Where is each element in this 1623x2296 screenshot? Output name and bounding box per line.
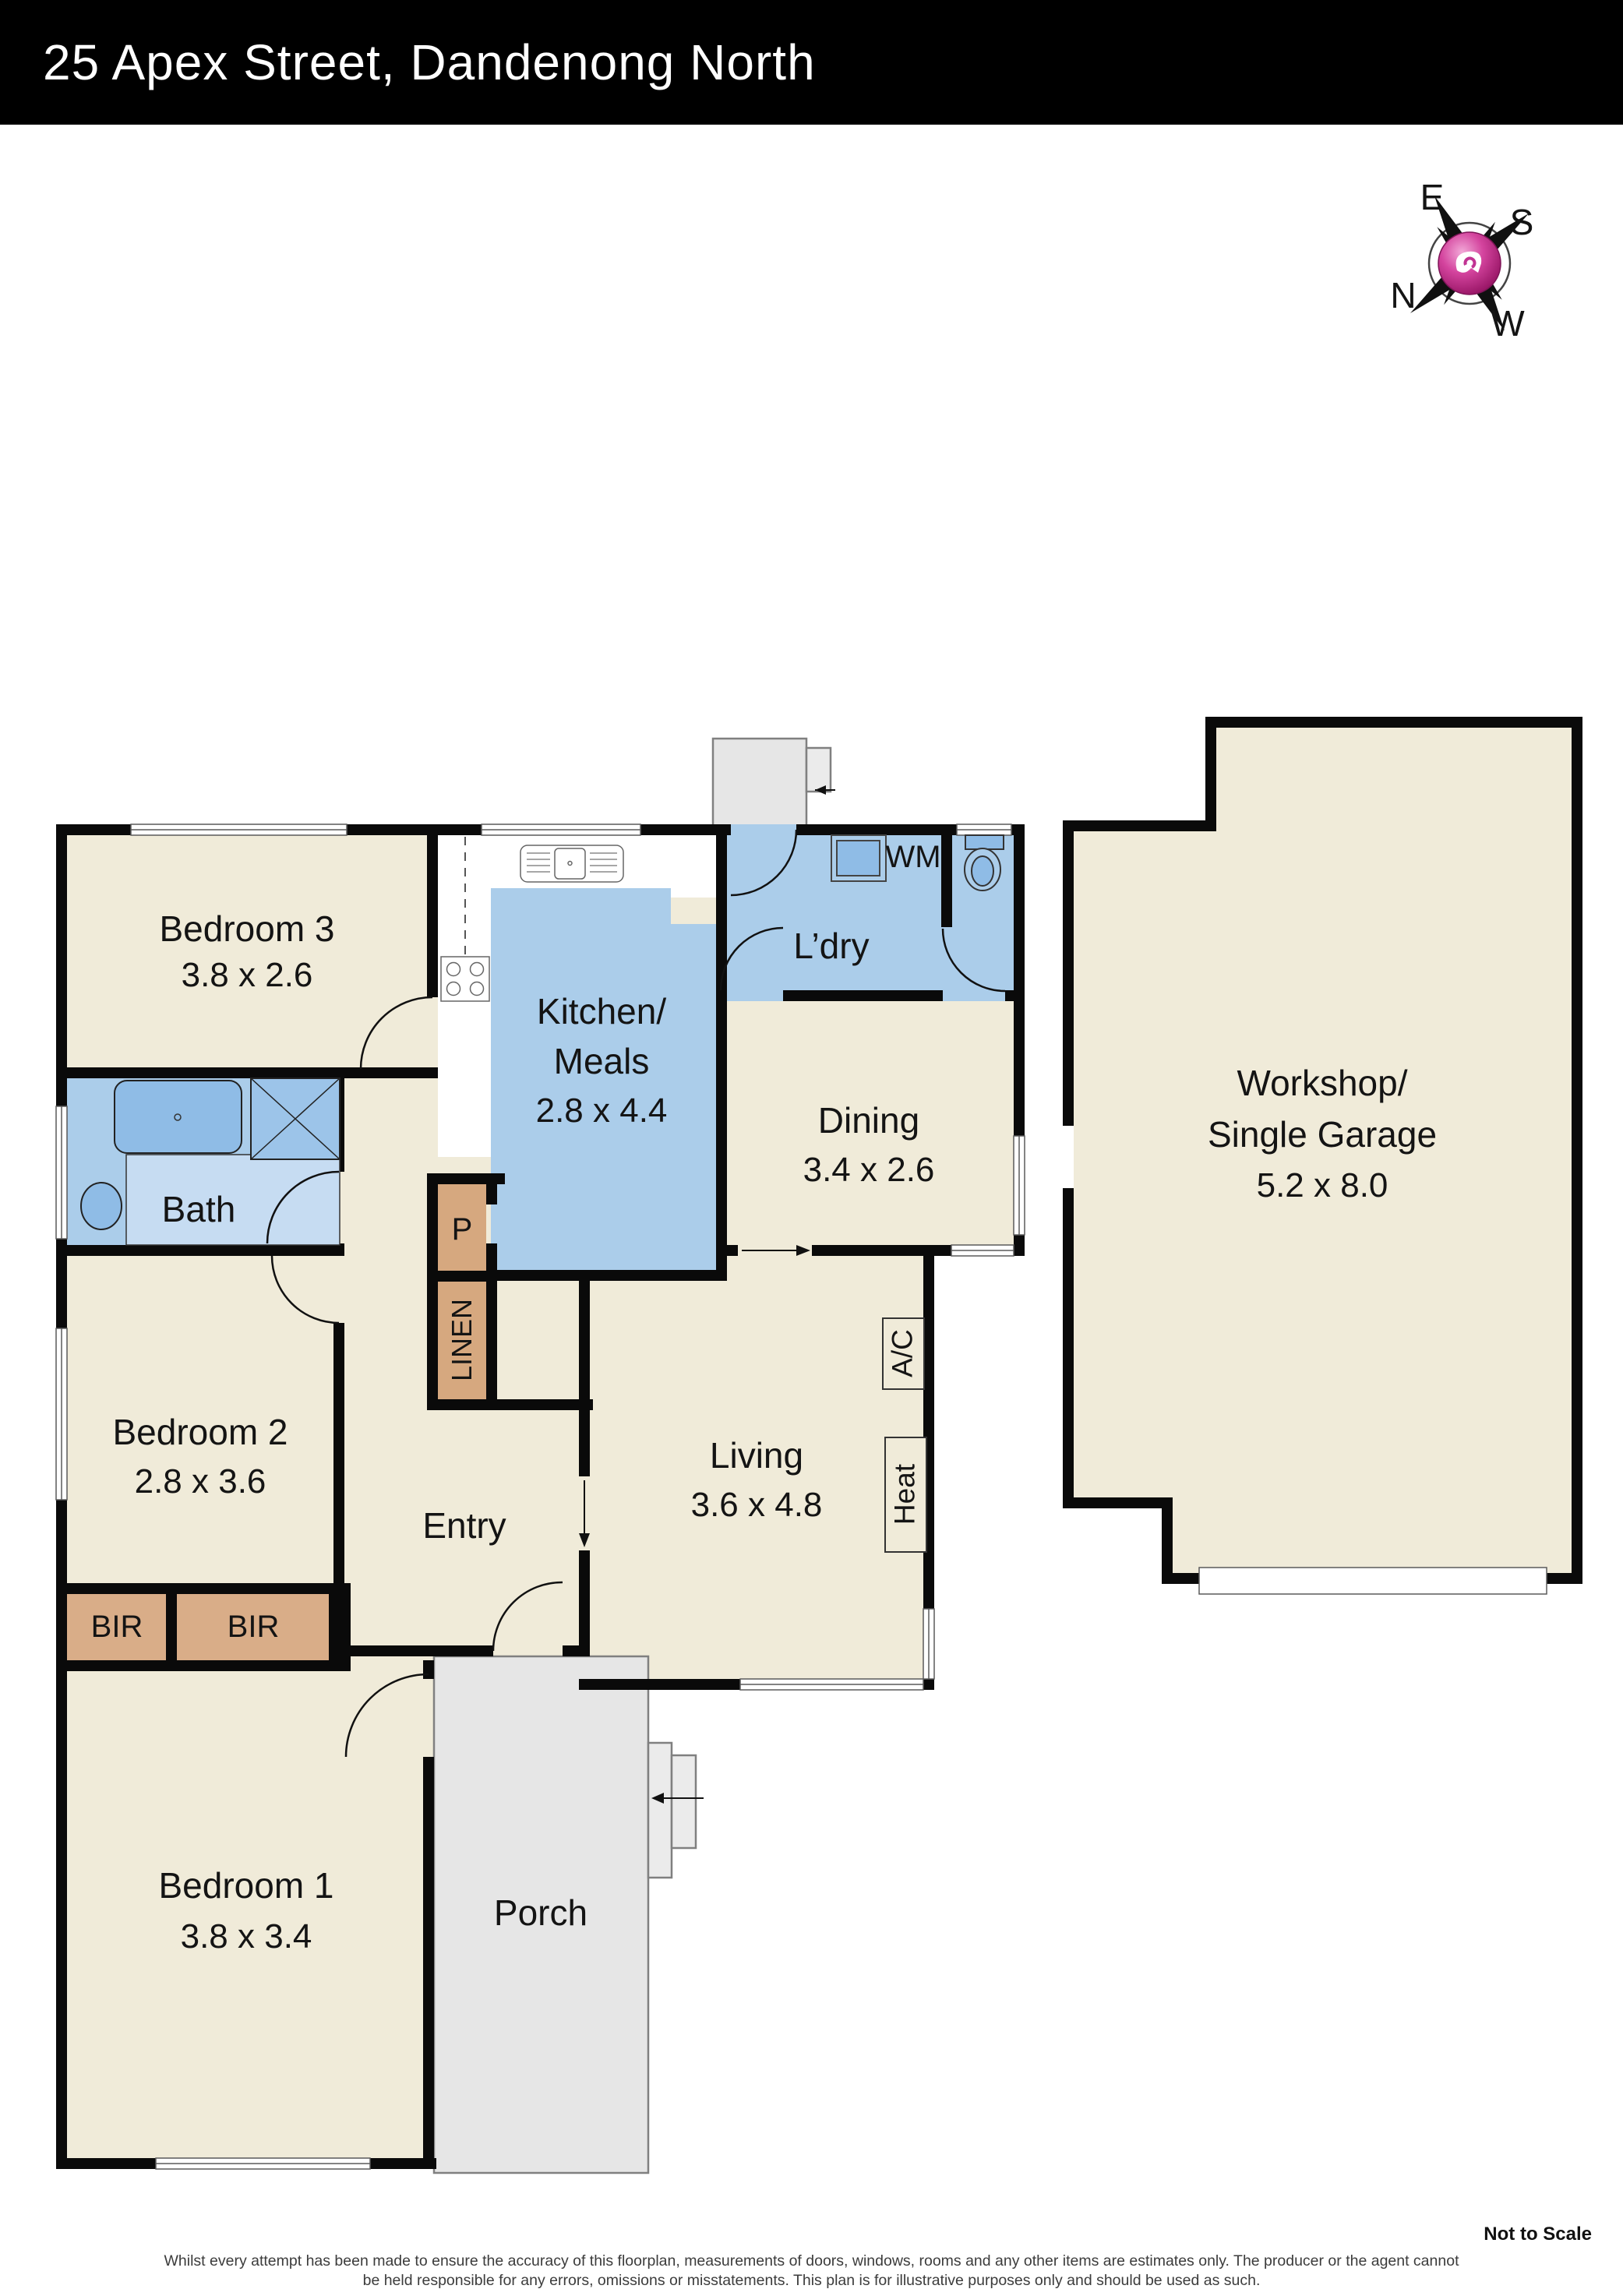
label-living: Living xyxy=(710,1437,803,1474)
label-linen: LINEN xyxy=(447,1299,477,1381)
label-bedroom3: Bedroom 3 xyxy=(159,910,334,947)
label-bir-left: BIR xyxy=(91,1610,143,1643)
window-wc-top xyxy=(957,824,1011,835)
compass-label-west: W xyxy=(1491,305,1524,342)
label-entry: Entry xyxy=(422,1507,506,1544)
window-bedroom2-left xyxy=(56,1328,67,1500)
rear-step-2 xyxy=(806,748,831,792)
label-heat: Heat xyxy=(891,1464,921,1525)
not-to-scale-note: Not to Scale xyxy=(1484,2224,1592,2245)
window-dining-right xyxy=(1014,1136,1025,1235)
label-porch: Porch xyxy=(494,1894,587,1931)
porch-step-2 xyxy=(672,1755,696,1848)
compass-label-north: N xyxy=(1390,277,1416,314)
disclaimer-line-2: be held responsible for any errors, omis… xyxy=(0,2271,1623,2291)
basin xyxy=(81,1183,122,1229)
label-dining-dims: 3.4 x 2.6 xyxy=(803,1152,935,1188)
floorplan-page: 25 Apex Street, Dandenong North xyxy=(0,0,1623,2296)
disclaimer-line-1: Whilst every attempt has been made to en… xyxy=(0,2252,1623,2271)
label-bir-right: BIR xyxy=(228,1610,280,1643)
porch-step-1 xyxy=(648,1743,672,1878)
bathtub xyxy=(115,1081,242,1153)
label-kitchen-2: Meals xyxy=(554,1042,650,1080)
window-kitchen-top xyxy=(482,824,640,835)
garage-door xyxy=(1199,1568,1547,1594)
sink xyxy=(520,845,623,882)
window-living-right xyxy=(923,1609,934,1679)
cooktop xyxy=(441,957,489,1001)
washing-machine xyxy=(831,835,886,881)
label-laundry: L’dry xyxy=(793,927,869,965)
toilet xyxy=(965,835,1004,891)
window-living-bottom xyxy=(740,1679,923,1690)
label-pantry: P xyxy=(452,1213,473,1246)
label-workshop-1: Workshop/ xyxy=(1237,1064,1407,1102)
window-bedroom1-bottom xyxy=(156,2158,370,2169)
label-ac: A/C xyxy=(888,1329,919,1377)
label-bedroom2-dims: 2.8 x 3.6 xyxy=(135,1464,266,1500)
window-bath-left xyxy=(56,1106,67,1239)
label-dining: Dining xyxy=(818,1102,919,1139)
label-bedroom1: Bedroom 1 xyxy=(158,1867,333,1904)
compass-label-south: S xyxy=(1510,203,1534,241)
label-wm: WM xyxy=(885,841,940,873)
label-bedroom1-dims: 3.8 x 3.4 xyxy=(181,1919,312,1955)
label-workshop-dims: 5.2 x 8.0 xyxy=(1257,1168,1388,1204)
label-kitchen-dims: 2.8 x 4.4 xyxy=(536,1093,668,1129)
rear-door-opening xyxy=(731,824,796,835)
disclaimer: Whilst every attempt has been made to en… xyxy=(0,2252,1623,2291)
label-bedroom3-dims: 3.8 x 2.6 xyxy=(182,958,313,993)
label-living-dims: 3.6 x 4.8 xyxy=(691,1487,823,1523)
rear-step-1 xyxy=(713,739,806,826)
label-bedroom2: Bedroom 2 xyxy=(112,1413,288,1451)
label-bath: Bath xyxy=(162,1190,236,1228)
label-workshop-2: Single Garage xyxy=(1208,1116,1437,1153)
compass-label-east: E xyxy=(1420,178,1445,216)
label-kitchen-1: Kitchen/ xyxy=(537,993,666,1030)
shower xyxy=(251,1078,340,1159)
window-bedroom3-top xyxy=(131,824,347,835)
window-dining-bottom xyxy=(951,1245,1014,1256)
